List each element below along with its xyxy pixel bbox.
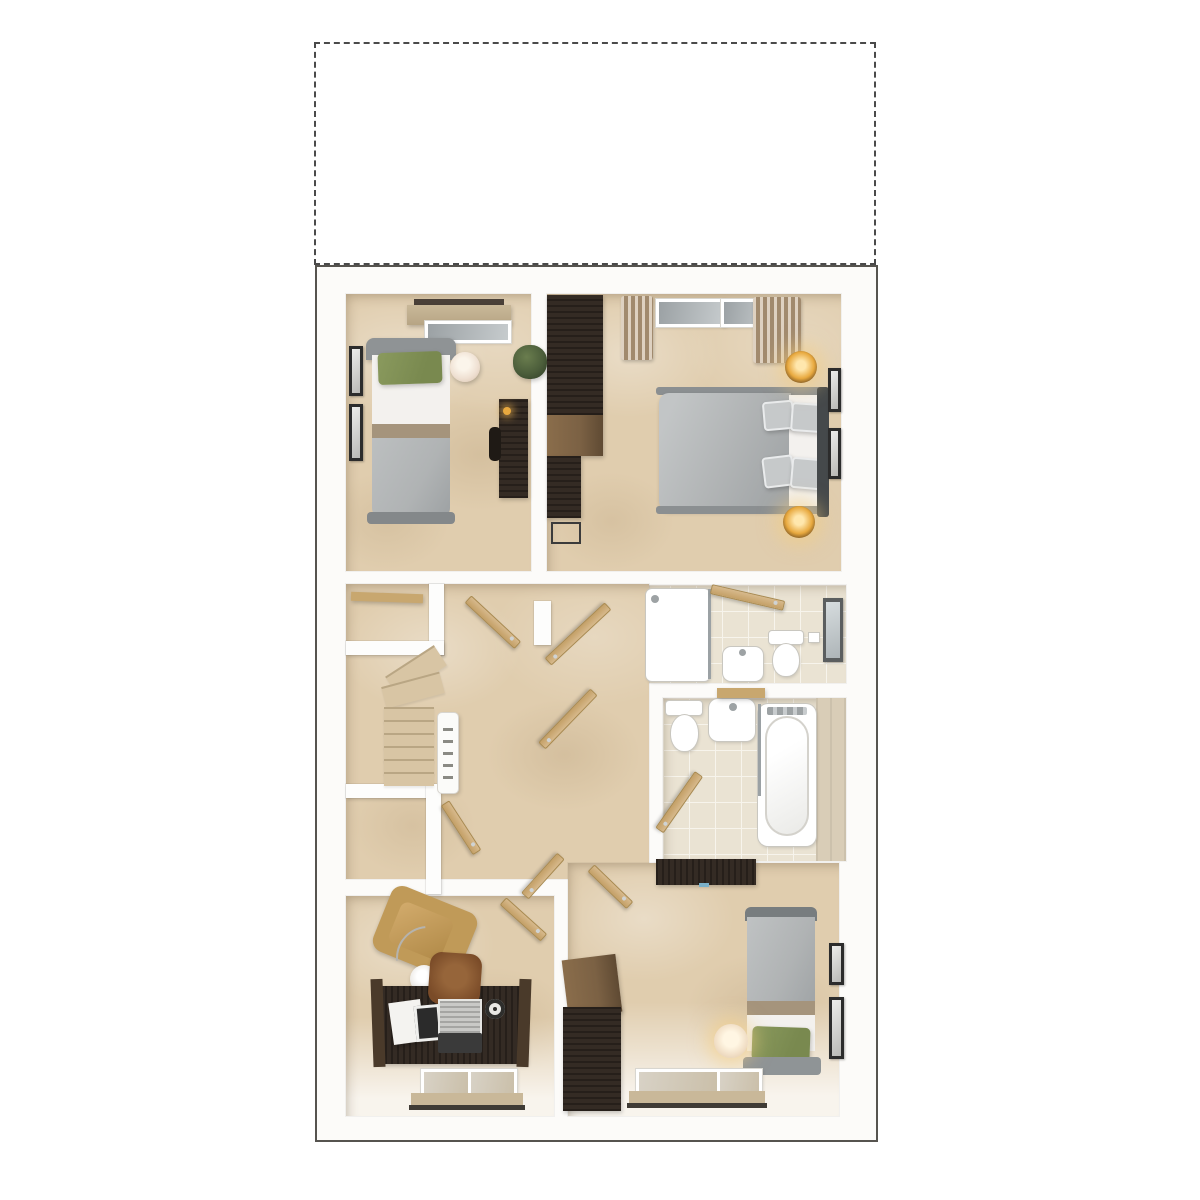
toilet-cistern (666, 701, 702, 715)
wall-picture (829, 997, 844, 1059)
banister-balusters (443, 719, 453, 787)
green-pillow (377, 351, 442, 385)
plant (513, 345, 547, 379)
bedside-lamp-lit (783, 506, 815, 538)
stair-tread (384, 772, 434, 786)
basin-tap (729, 703, 737, 711)
master-window-1 (656, 299, 726, 327)
shower-head (651, 595, 659, 603)
shower-glass-edge (708, 589, 711, 679)
bed-footboard (367, 512, 455, 524)
bath-screen-glass (758, 704, 761, 796)
desk-lamp-glow (503, 407, 511, 415)
dressing-table (547, 456, 581, 518)
bedside-lamp-lit (785, 351, 817, 383)
mirror-glass (826, 602, 840, 658)
wall-picture (828, 368, 841, 412)
bed-duvet (372, 438, 450, 518)
bathtub-inner (765, 716, 809, 836)
dressing-stool (551, 522, 581, 544)
ensuite-toilet-bowl (773, 644, 799, 676)
paper-lantern-lamp (450, 352, 480, 382)
wall-picture (829, 943, 844, 985)
bathroom-wall-tiles (816, 698, 846, 861)
curtain-left (621, 296, 653, 360)
tall-wardrobe (547, 295, 603, 415)
laptop-screen (438, 1033, 482, 1053)
dashed-placeholder-region (314, 42, 876, 265)
wall-shelf-wood (717, 688, 765, 698)
shelf-accent (699, 883, 709, 887)
ensuite-toilet-cistern (769, 631, 803, 644)
bedroom-3-desk-chair (489, 427, 501, 461)
window-glass (659, 302, 723, 324)
doorway-wall-stub (534, 601, 551, 645)
wall-shelf-unit (656, 859, 756, 885)
cupboard-wall (426, 784, 441, 894)
window-glass (471, 1072, 515, 1094)
window-glass (424, 1072, 468, 1094)
bed-duvet (747, 917, 815, 1005)
laptop-keyboard (438, 999, 482, 1035)
wall-picture (349, 404, 363, 461)
wall-picture (828, 428, 841, 479)
wall-picture (349, 346, 363, 396)
wardrobe-body (563, 1007, 621, 1111)
table-lamp-lit (714, 1024, 748, 1058)
window-sill-shadow (627, 1103, 767, 1108)
window-sill-shadow (409, 1105, 525, 1110)
bath-taps (767, 707, 807, 715)
cupboard-wall (346, 784, 431, 798)
basin-tap (739, 649, 746, 656)
screenshot-canvas (0, 0, 1200, 1200)
light-switch (809, 633, 819, 642)
wardrobe-low-section (547, 415, 603, 456)
desk-clock (485, 999, 505, 1019)
toilet-bowl (671, 715, 698, 751)
floorplan-figure (315, 265, 878, 1142)
